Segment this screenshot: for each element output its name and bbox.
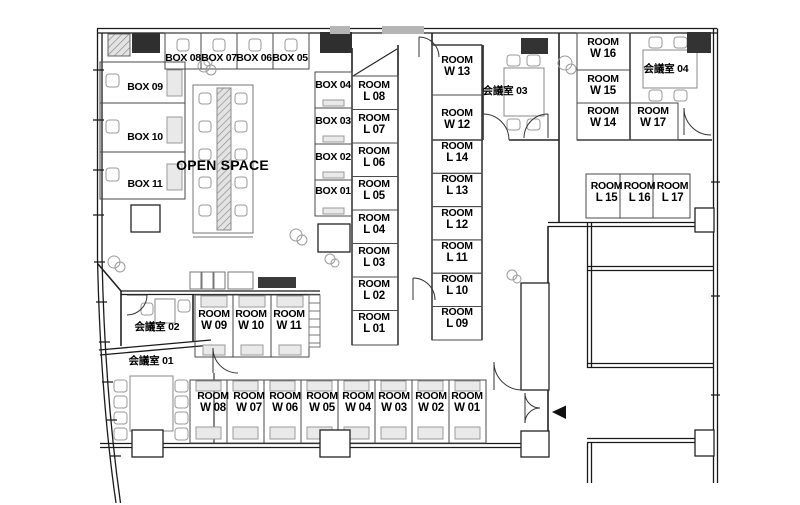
room-cell-label: ROOMW 11 [265, 309, 313, 333]
pillar [695, 208, 714, 232]
floor-plan: OPEN SPACE BOX 08 BOX 07 BOX 06 BOX 05 B… [0, 0, 800, 505]
door-entry-double [525, 393, 540, 423]
room-cell-label: ROOML 13 [433, 174, 481, 198]
room-cell-label: ROOML 11 [433, 241, 481, 265]
plant-icon [108, 256, 125, 272]
room-cell-label: ROOMW 13 [433, 55, 481, 79]
room-cell-label: ROOMW 14 [578, 106, 628, 130]
pillar [695, 430, 714, 456]
kitchen-counter [258, 277, 296, 288]
room-cell-label: ROOML 02 [350, 279, 398, 303]
door-corridor [524, 114, 548, 138]
room-cell-label: ROOML 14 [433, 141, 481, 165]
dark-fixture [521, 38, 548, 54]
room-cell-label: ROOML 16 [622, 181, 657, 205]
box-label: BOX 10 [119, 132, 171, 144]
pillar [131, 205, 160, 232]
room-cell-label: ROOML 07 [350, 113, 398, 137]
room-cell-label: ROOML 10 [433, 274, 481, 298]
room-cell-label: ROOML 03 [350, 246, 398, 270]
room-cell-label: ROOML 05 [350, 179, 398, 203]
meeting-room-01-table [130, 376, 173, 431]
box-label: BOX 11 [119, 179, 171, 191]
room-cell-label: ROOMW 16 [578, 37, 628, 61]
room-cell-label: ROOMW 12 [433, 108, 481, 132]
room-cell-label: ROOMW 17 [629, 106, 677, 130]
meeting-room-label: 会議室 03 [472, 86, 538, 98]
plant-icon [507, 270, 521, 283]
door-corridor [419, 37, 439, 57]
floor-plan-linework [0, 0, 800, 505]
meeting-room-02-desk [155, 299, 175, 323]
room-cell-label: ROOML 06 [350, 146, 398, 170]
wall-vent [382, 26, 424, 34]
room-cell-label: ROOMW 15 [578, 74, 628, 98]
dark-fixture [687, 32, 711, 53]
pillar [521, 431, 549, 457]
door-entry-inner [494, 362, 522, 390]
pillar [320, 430, 350, 457]
door-meeting-03 [483, 114, 509, 140]
entry-arrow-icon [552, 406, 566, 420]
room-cell-label: ROOML 01 [350, 312, 398, 336]
pillar-dark [320, 32, 352, 53]
pillar [318, 224, 350, 252]
meeting-room-label: 会議室 04 [633, 64, 699, 76]
door-meeting-02 [127, 295, 147, 315]
pillar-dark [132, 33, 160, 53]
wall-vent [330, 26, 350, 34]
meeting-room-label: 会議室 02 [124, 322, 190, 334]
box-label: BOX 09 [119, 82, 171, 94]
room-cell-label: ROOML 04 [350, 213, 398, 237]
box-label: BOX 05 [268, 53, 312, 65]
door-room-w17 [684, 108, 711, 135]
shaft [521, 283, 549, 390]
room-cell-label: ROOML 08 [350, 80, 398, 104]
meeting-room-label: 会議室 01 [118, 356, 184, 368]
room-cell-label: ROOMW 01 [443, 391, 491, 415]
pillar [132, 430, 163, 457]
room-cell-label: ROOML 12 [433, 208, 481, 232]
room-cell-label: ROOML 17 [655, 181, 690, 205]
plant-icon [290, 229, 307, 245]
open-space-label: OPEN SPACE [160, 158, 285, 173]
plant-icon [558, 56, 576, 74]
planter-box [108, 34, 130, 56]
room-cell-label: ROOML 09 [433, 307, 481, 331]
plant-icon [325, 254, 339, 267]
room-cell-label: ROOML 15 [589, 181, 624, 205]
